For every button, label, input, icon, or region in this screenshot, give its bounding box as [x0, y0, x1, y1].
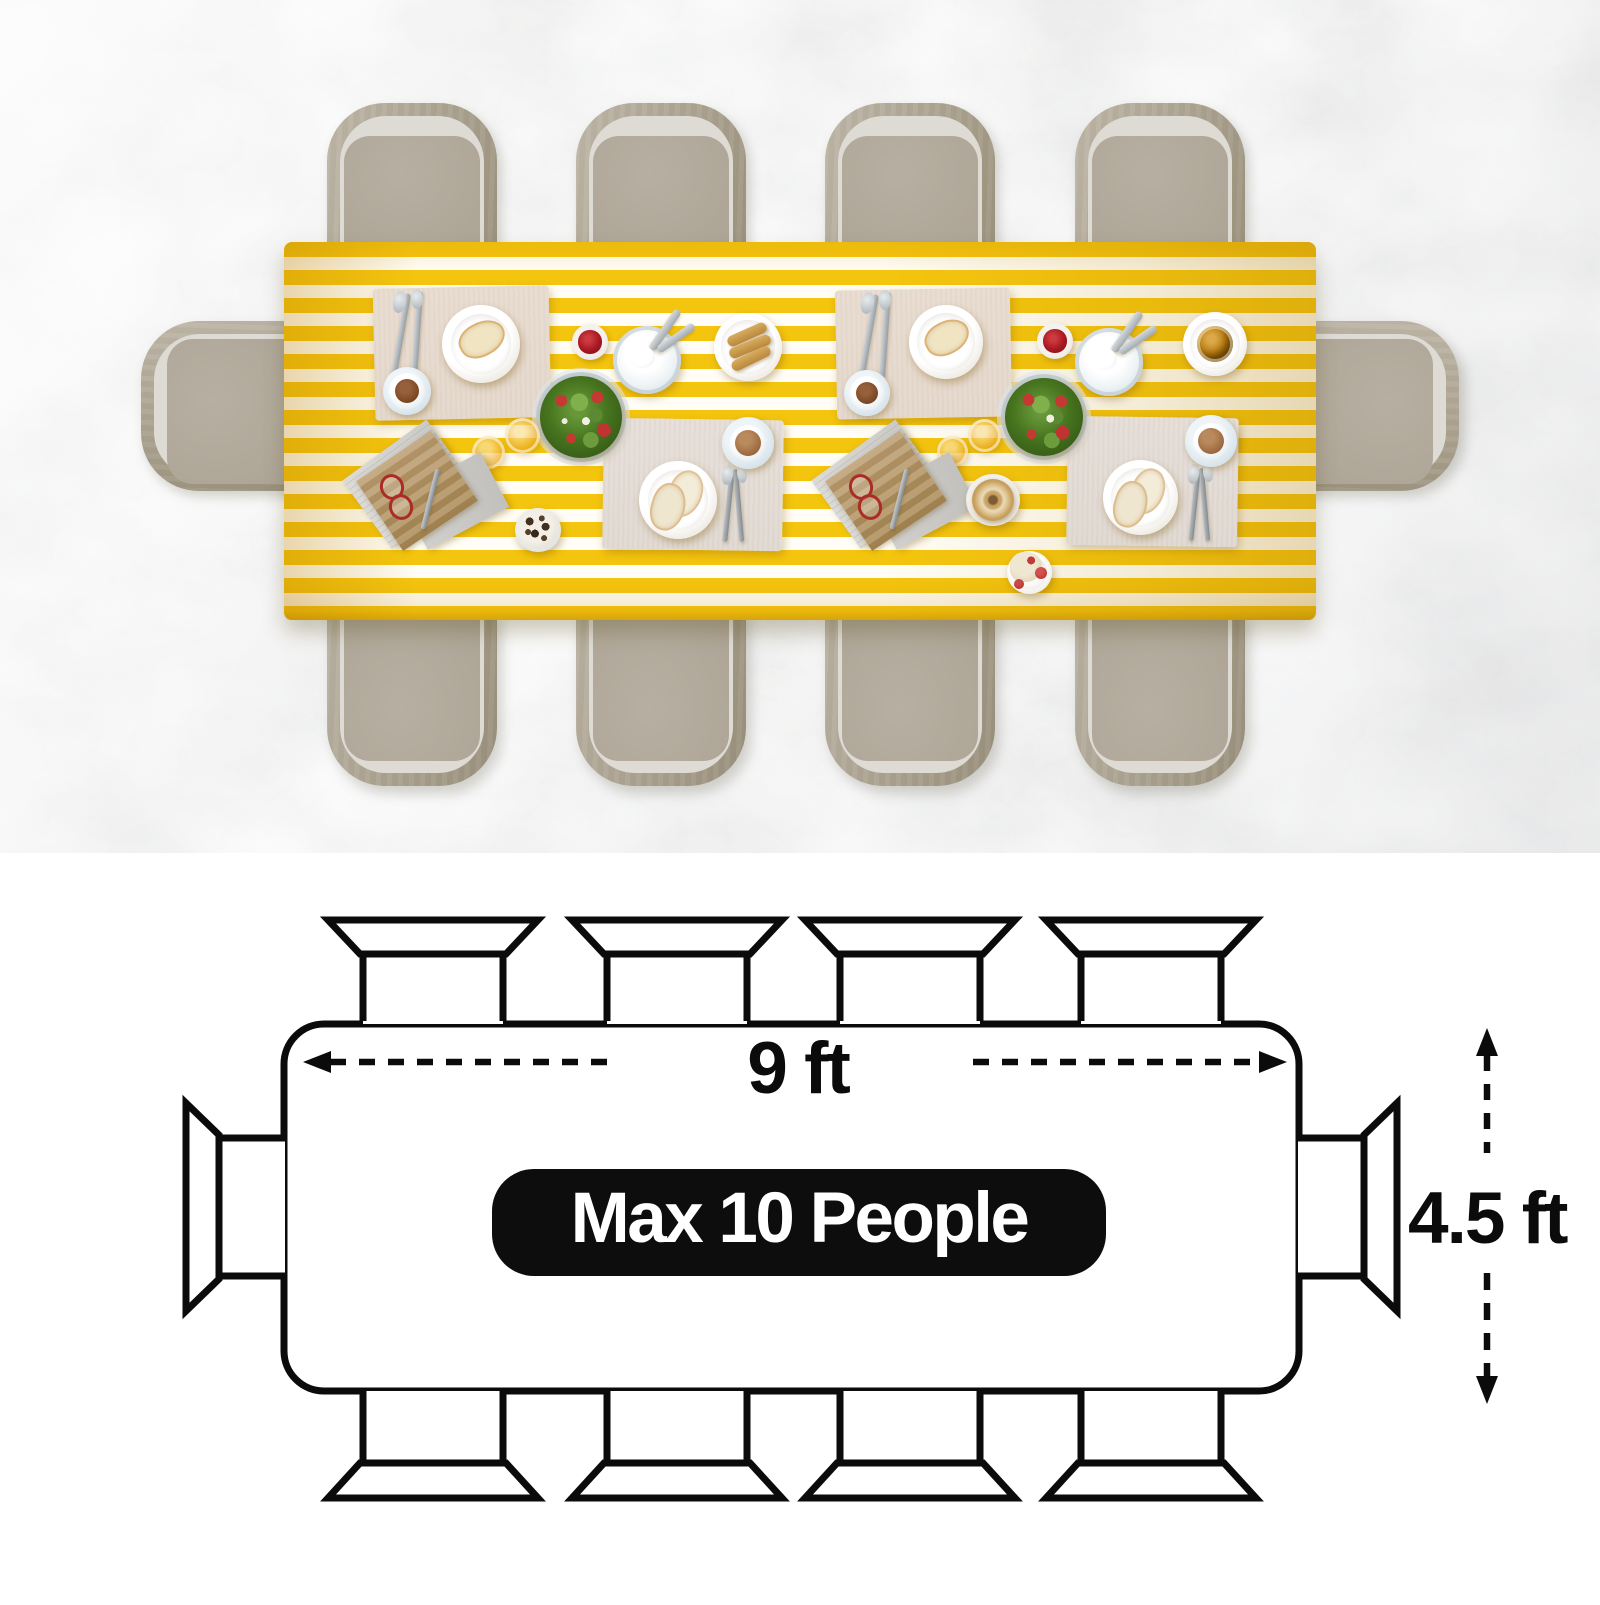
svg-text:9 ft: 9 ft [747, 1028, 850, 1109]
svg-text:4.5 ft: 4.5 ft [1408, 1178, 1568, 1259]
svg-text:Max 10 People: Max 10 People [571, 1179, 1029, 1258]
